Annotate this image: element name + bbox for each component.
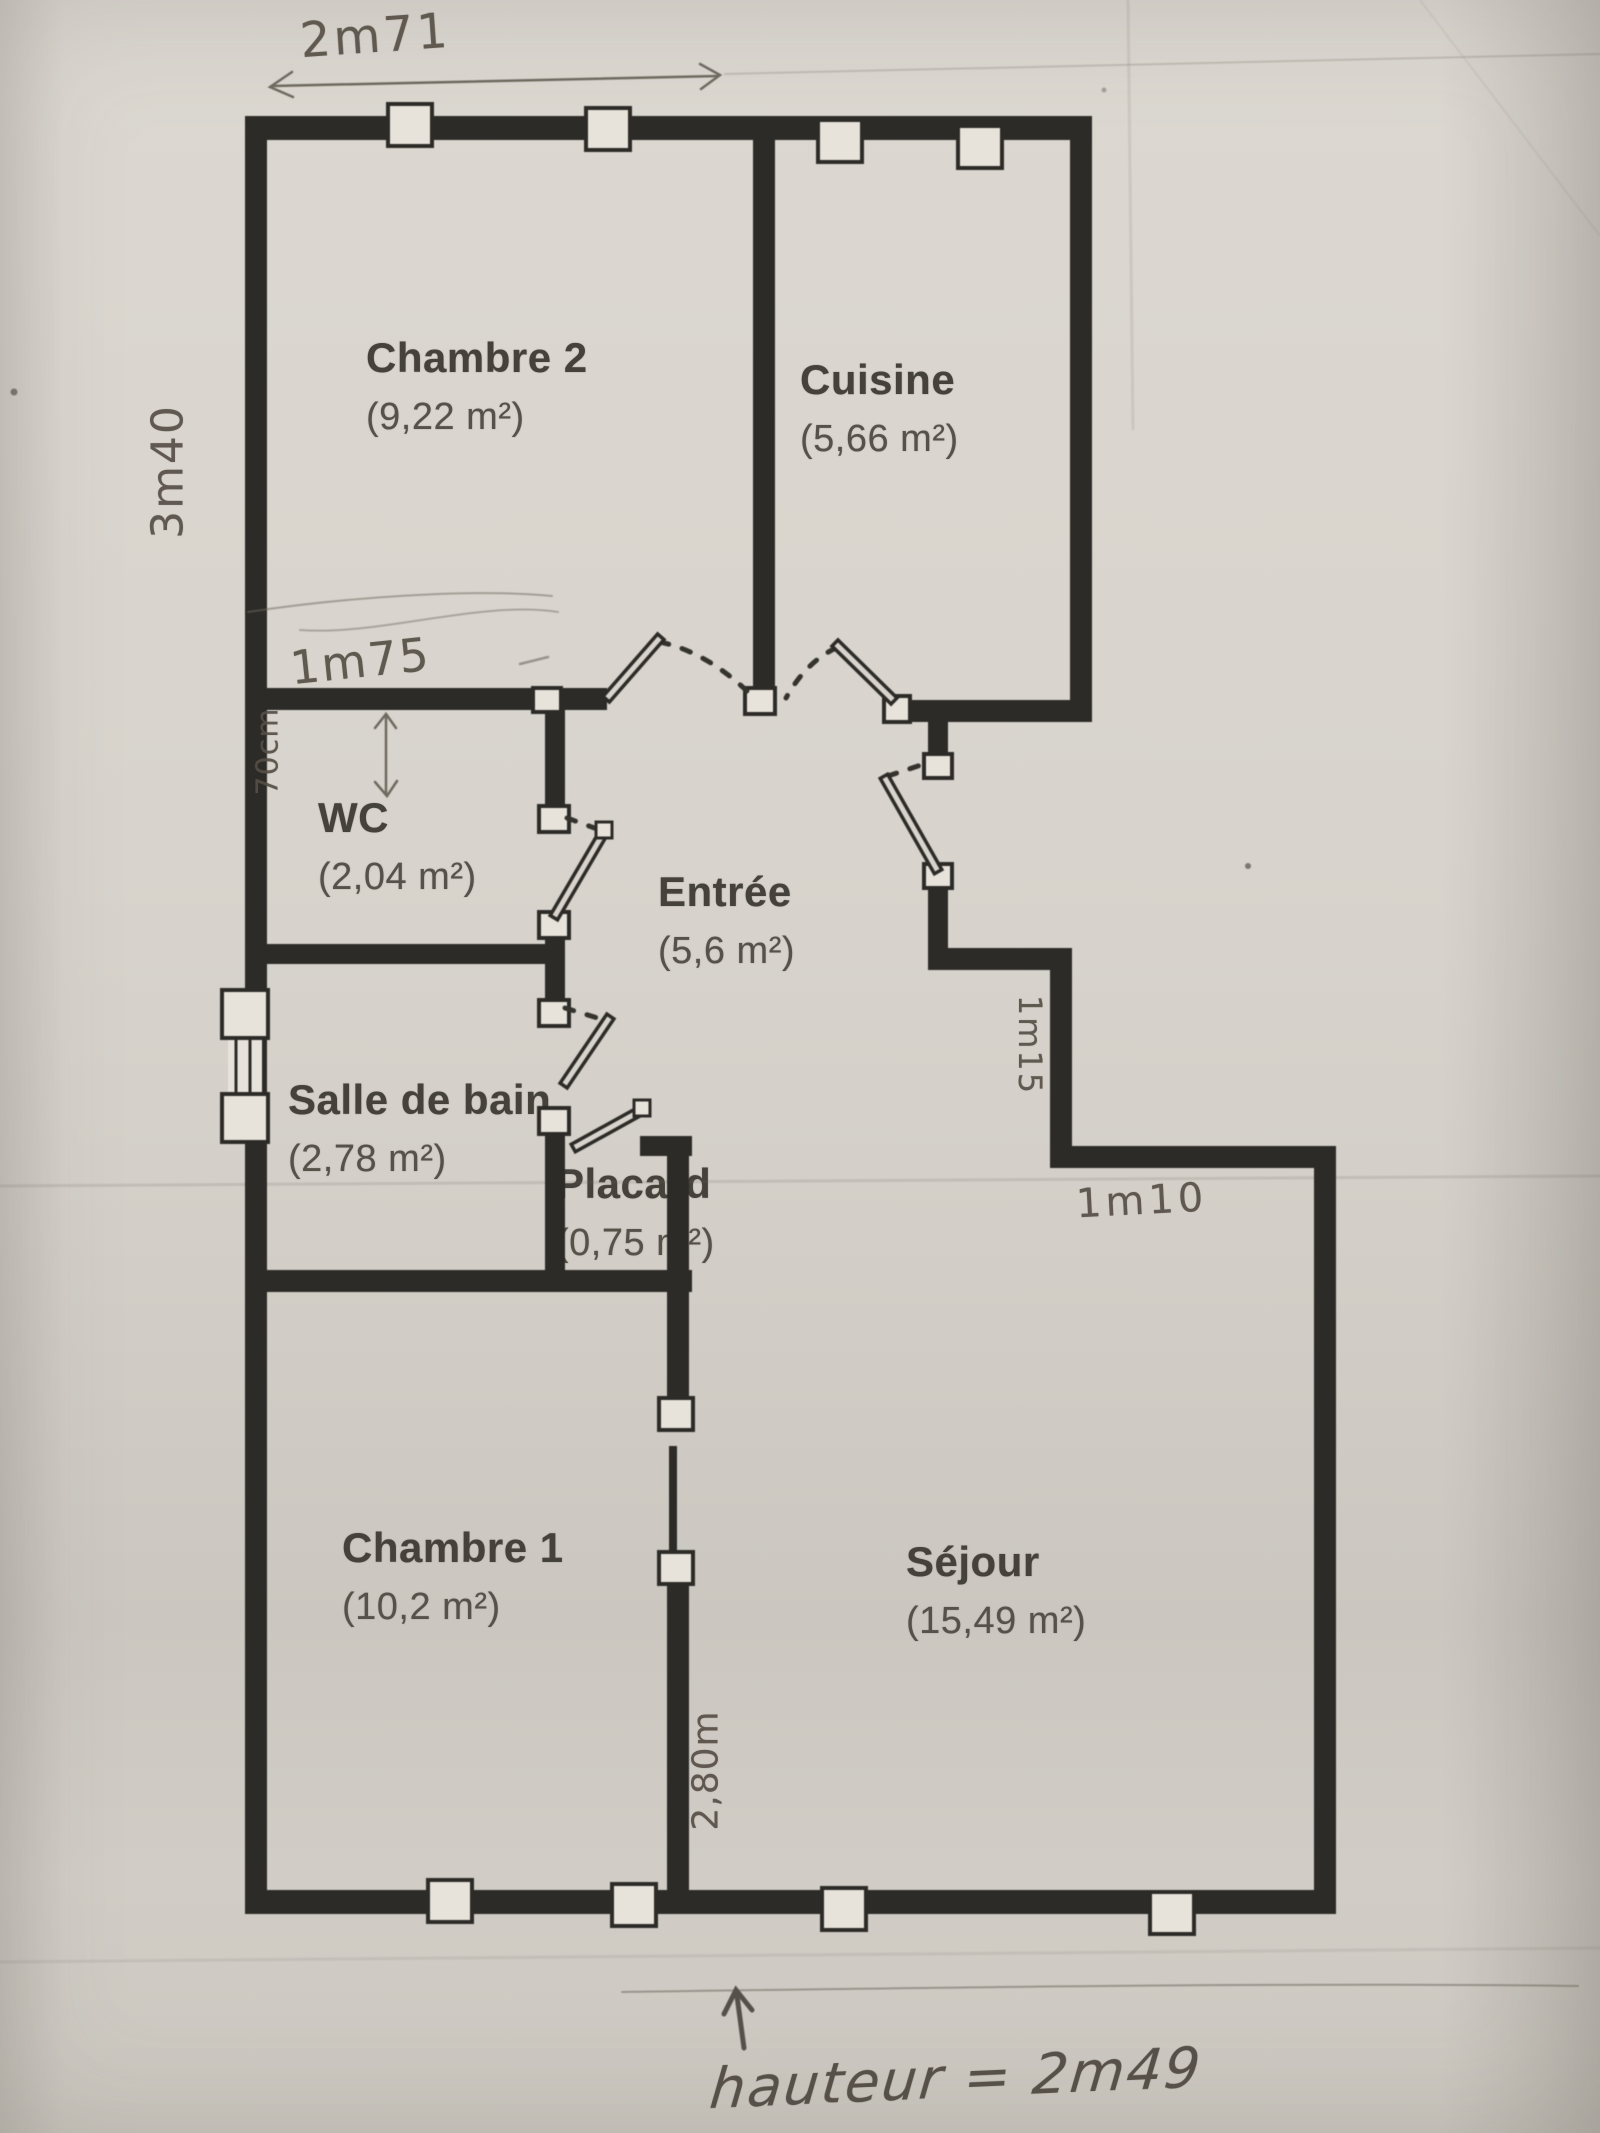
- door-leaf-sdb: [566, 1020, 608, 1082]
- door-leaf-chambre1: [669, 1446, 677, 1550]
- pencil-baseline: [622, 1985, 1578, 1992]
- pencil-annotations: [248, 64, 1578, 2048]
- door-leaf-entrance: [886, 780, 936, 868]
- window-bottom-4: [1150, 1892, 1194, 1934]
- wall-sejour-top: [1050, 1146, 1336, 1168]
- window-left-block-2: [222, 1094, 268, 1142]
- door-leaf-placard: [577, 1110, 642, 1146]
- annotation-1m10: 1m10: [1075, 1175, 1209, 1228]
- door-arc-cuisine: [786, 648, 836, 698]
- annotation-width-top: 2m71: [298, 3, 452, 69]
- floorplan-drawing: [0, 0, 1600, 2133]
- wall-right: [1314, 1146, 1336, 1914]
- wall-entry-sejour: [1050, 948, 1072, 1166]
- window-top-1: [388, 104, 432, 146]
- wall-chambre2-cuisine: [753, 116, 775, 702]
- wall-corridor-a: [667, 1136, 689, 1406]
- window-top-3: [818, 120, 862, 162]
- door-arc-chambre2: [660, 642, 748, 692]
- window-bottom-3: [822, 1888, 866, 1930]
- wall-wc-bottom: [245, 944, 565, 964]
- wall-cuisine-bottom: [890, 700, 1092, 722]
- annotation-height-left: 3m40: [143, 387, 194, 557]
- arrow-up-hauteur: [737, 1996, 744, 2048]
- dimension-arrow-top: [272, 76, 718, 86]
- window-left-glass: [228, 1036, 262, 1096]
- door-leaf-wc: [556, 832, 604, 914]
- annotation-70cm: 70cm: [251, 682, 286, 822]
- paper-creases: [0, 0, 1600, 1962]
- floorplan-photo: Chambre 2 (9,22 m²) Cuisine (5,66 m²) WC…: [0, 0, 1600, 2133]
- annotation-2m80: 2,80m: [686, 1686, 727, 1856]
- wall-wc-right-c: [545, 1130, 565, 1292]
- walls: [245, 116, 1336, 1914]
- wall-sdb-bottom: [245, 1270, 692, 1292]
- paper-specks: [11, 88, 1252, 870]
- window-left-block-1: [222, 990, 268, 1038]
- window-top-2: [586, 108, 630, 150]
- annotation-1m15: 1m15: [1011, 975, 1049, 1115]
- window-bottom-1: [428, 1880, 472, 1922]
- door-leaf-chambre2: [609, 640, 658, 696]
- window-top-4: [958, 126, 1002, 168]
- door-leaf-cuisine: [838, 646, 891, 698]
- wall-cuisine-right: [1070, 116, 1092, 722]
- window-bottom-2: [612, 1884, 656, 1926]
